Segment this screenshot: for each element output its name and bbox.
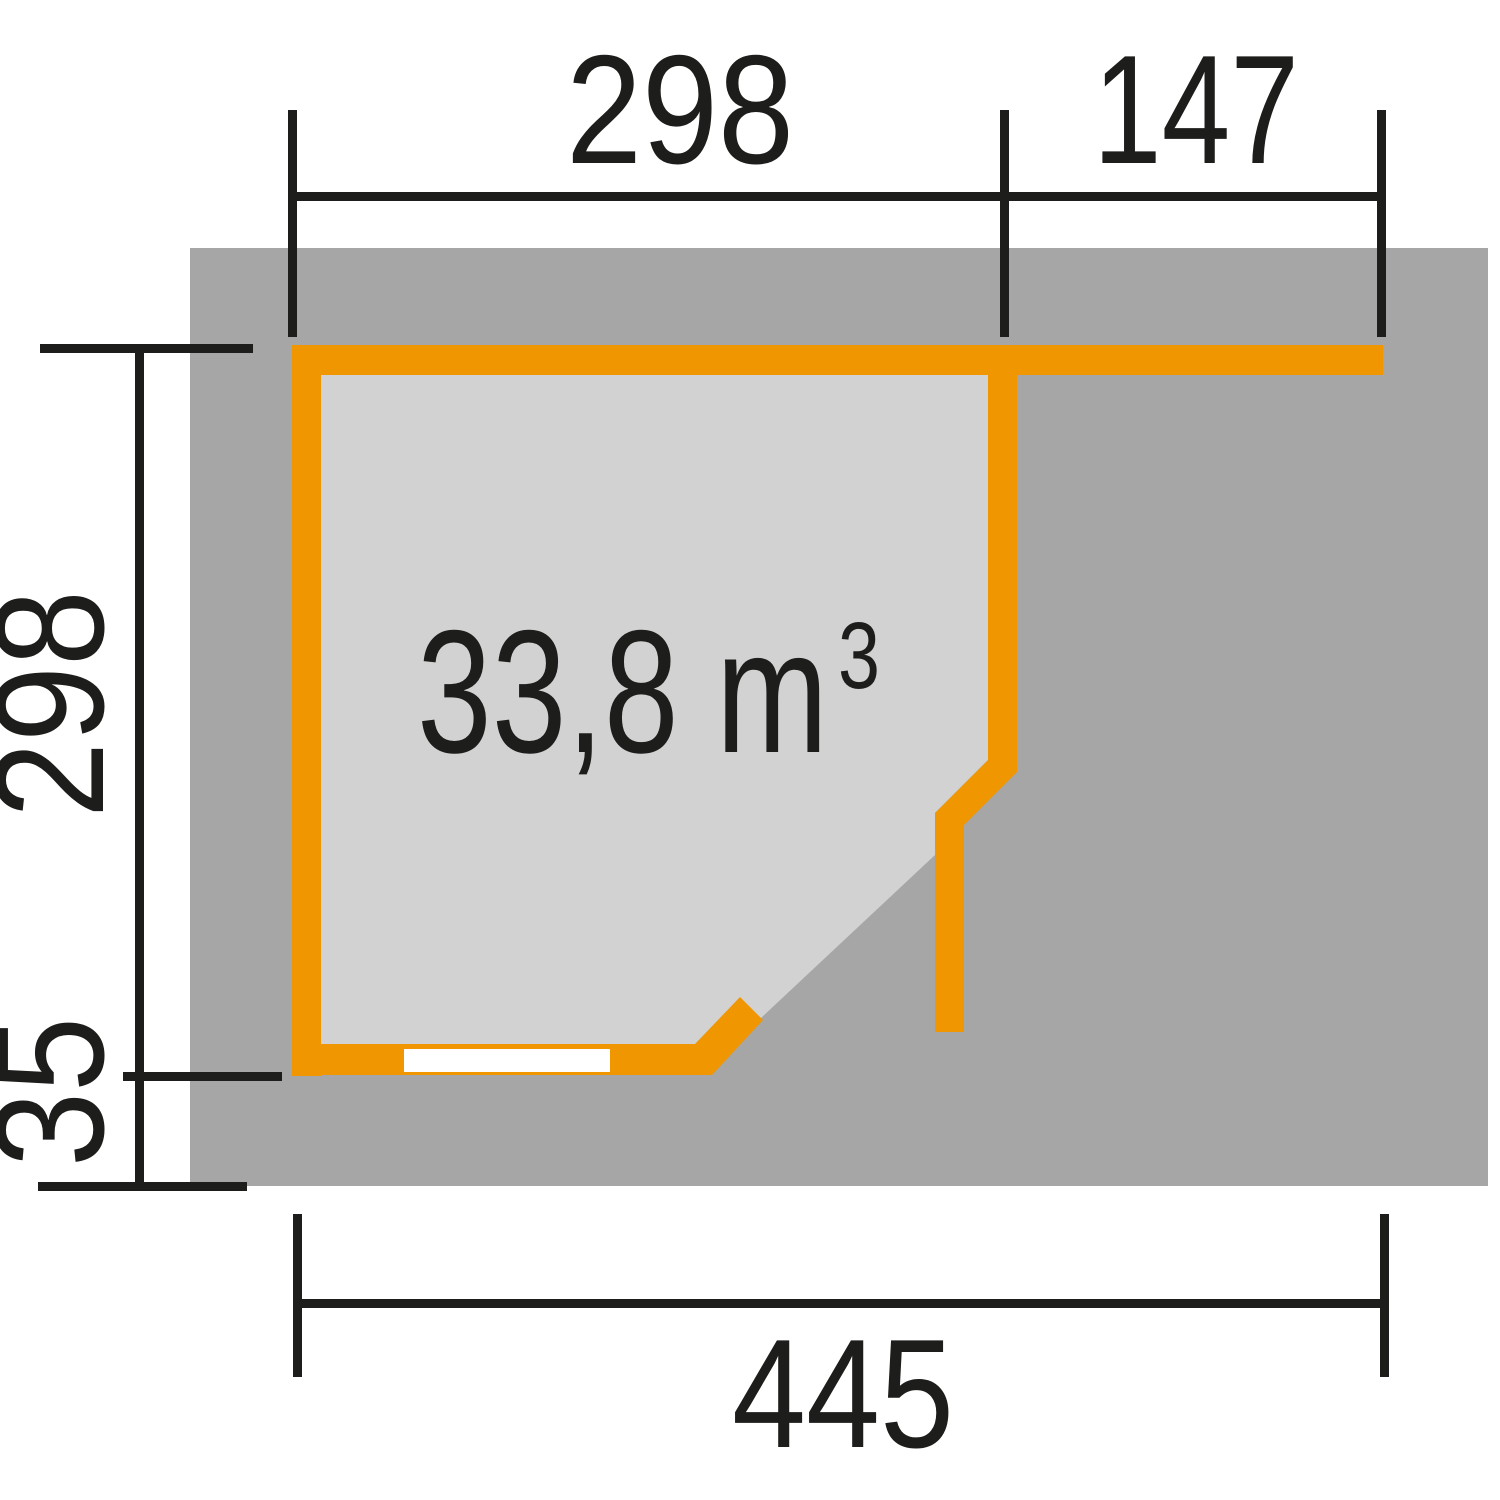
dim-tick-bottom-right bbox=[1380, 1214, 1389, 1377]
dim-tick-top-right bbox=[1377, 110, 1386, 337]
floor-plan-canvas: 298 147 298 35 445 33,8 m 3 bbox=[0, 0, 1500, 1500]
volume-superscript: 3 bbox=[838, 603, 880, 709]
dim-tick-top-middle bbox=[1000, 110, 1009, 337]
dim-label-left-298: 298 bbox=[0, 590, 136, 818]
dim-tick-bottom-left bbox=[293, 1214, 302, 1377]
floor-plan-image: 298 147 298 35 445 33,8 m 3 bbox=[0, 0, 1500, 1500]
dim-tick-top-left bbox=[288, 110, 297, 337]
wall-left bbox=[292, 345, 321, 1076]
dim-label-top-298: 298 bbox=[566, 23, 794, 196]
dim-tick-left-top bbox=[40, 344, 253, 353]
volume-value: 33,8 m bbox=[417, 595, 828, 790]
dim-label-bottom-445: 445 bbox=[732, 1307, 954, 1480]
dim-line-left bbox=[135, 345, 144, 1191]
window-marker bbox=[404, 1049, 610, 1072]
wall-top bbox=[292, 345, 1383, 375]
dim-label-left-35: 35 bbox=[0, 1017, 136, 1167]
dim-tick-left-bottom bbox=[38, 1182, 247, 1191]
volume-label: 33,8 m 3 bbox=[417, 595, 880, 790]
dim-label-top-147: 147 bbox=[1093, 23, 1299, 196]
dim-tick-left-middle bbox=[123, 1072, 282, 1081]
